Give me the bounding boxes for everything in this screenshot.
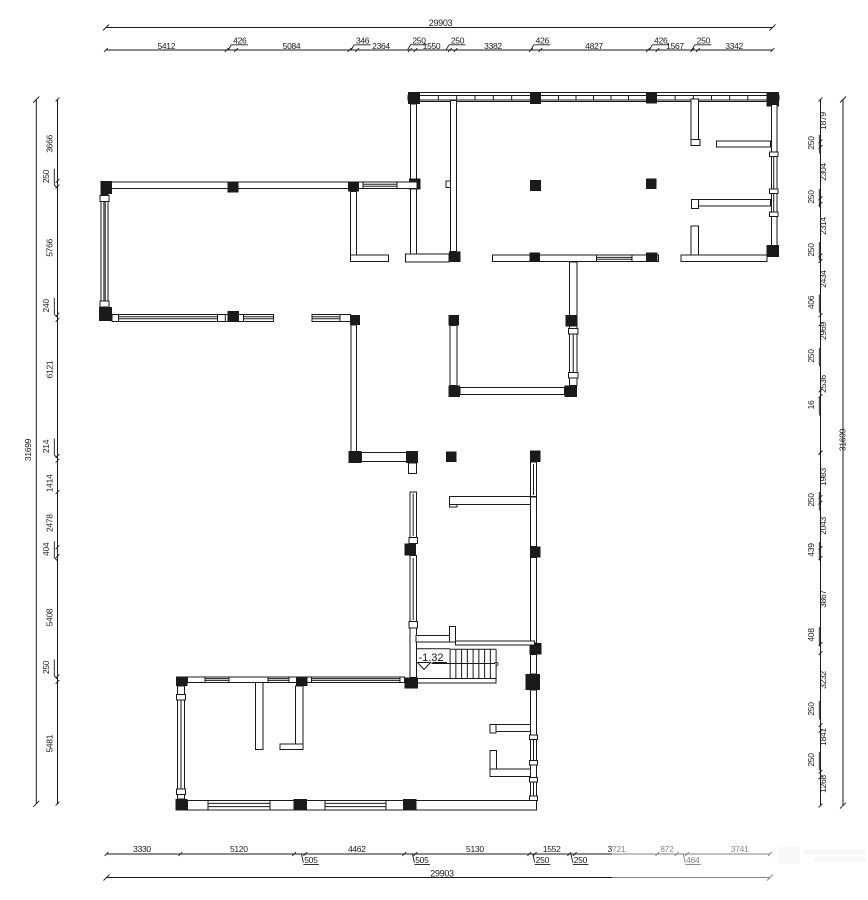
svg-text:250: 250 xyxy=(806,753,816,767)
svg-text:5130: 5130 xyxy=(466,844,484,854)
svg-text:250: 250 xyxy=(806,702,816,716)
svg-text:1414: 1414 xyxy=(45,474,55,492)
svg-text:404: 404 xyxy=(41,542,51,556)
svg-text:1983: 1983 xyxy=(818,468,828,486)
svg-text:439: 439 xyxy=(806,543,816,557)
svg-text:2043: 2043 xyxy=(818,517,828,535)
svg-text:250: 250 xyxy=(574,855,588,865)
svg-text:2969: 2969 xyxy=(818,322,828,340)
svg-text:408: 408 xyxy=(806,628,816,642)
svg-text:406: 406 xyxy=(806,295,816,309)
svg-text:4462: 4462 xyxy=(348,844,366,854)
svg-text:250: 250 xyxy=(806,349,816,363)
svg-text:16: 16 xyxy=(806,400,816,409)
svg-text:?: ? xyxy=(493,661,499,672)
svg-text:1841: 1841 xyxy=(818,728,828,746)
svg-text:2314: 2314 xyxy=(818,217,828,235)
svg-text:29903: 29903 xyxy=(429,18,453,28)
svg-text:4827: 4827 xyxy=(585,41,603,51)
svg-text:505: 505 xyxy=(304,855,318,865)
svg-text:250: 250 xyxy=(806,190,816,204)
svg-text:5412: 5412 xyxy=(157,41,175,51)
svg-text:250: 250 xyxy=(806,243,816,257)
svg-text:1567: 1567 xyxy=(666,41,684,51)
svg-text:240: 240 xyxy=(41,299,51,313)
svg-text:214: 214 xyxy=(41,439,51,453)
svg-text:3330: 3330 xyxy=(133,844,151,854)
svg-text:250: 250 xyxy=(41,660,51,674)
svg-text:505: 505 xyxy=(415,855,429,865)
svg-text:5084: 5084 xyxy=(283,41,301,51)
svg-text:3867: 3867 xyxy=(818,590,828,608)
svg-text:426: 426 xyxy=(233,36,247,46)
svg-text:250: 250 xyxy=(697,36,711,46)
svg-text:250: 250 xyxy=(806,136,816,150)
svg-text:250: 250 xyxy=(536,855,550,865)
svg-text:5481: 5481 xyxy=(45,734,55,752)
svg-text:426: 426 xyxy=(536,36,550,46)
svg-text:2304: 2304 xyxy=(818,163,828,181)
svg-text:2364: 2364 xyxy=(372,41,390,51)
svg-text:3342: 3342 xyxy=(725,41,743,51)
svg-text:2434: 2434 xyxy=(818,270,828,288)
svg-text:29903: 29903 xyxy=(430,868,454,878)
svg-text:3666: 3666 xyxy=(45,134,55,152)
svg-text:2536: 2536 xyxy=(818,375,828,393)
svg-text:3232: 3232 xyxy=(818,671,828,689)
svg-text:5408: 5408 xyxy=(45,608,55,626)
svg-text:1268: 1268 xyxy=(818,775,828,793)
svg-text:6121: 6121 xyxy=(45,360,55,378)
svg-text:1550: 1550 xyxy=(423,41,441,51)
svg-text:2478: 2478 xyxy=(45,514,55,532)
svg-text:1879: 1879 xyxy=(818,112,828,130)
svg-text:250: 250 xyxy=(806,493,816,507)
svg-text:346: 346 xyxy=(356,36,370,46)
svg-text:5766: 5766 xyxy=(45,238,55,256)
svg-text:250: 250 xyxy=(451,36,465,46)
svg-text:31699: 31699 xyxy=(838,428,848,451)
svg-text:5120: 5120 xyxy=(230,844,248,854)
svg-text:31699: 31699 xyxy=(23,438,33,461)
svg-text:3382: 3382 xyxy=(484,41,502,51)
svg-text:1552: 1552 xyxy=(543,844,561,854)
svg-text:250: 250 xyxy=(41,169,51,183)
